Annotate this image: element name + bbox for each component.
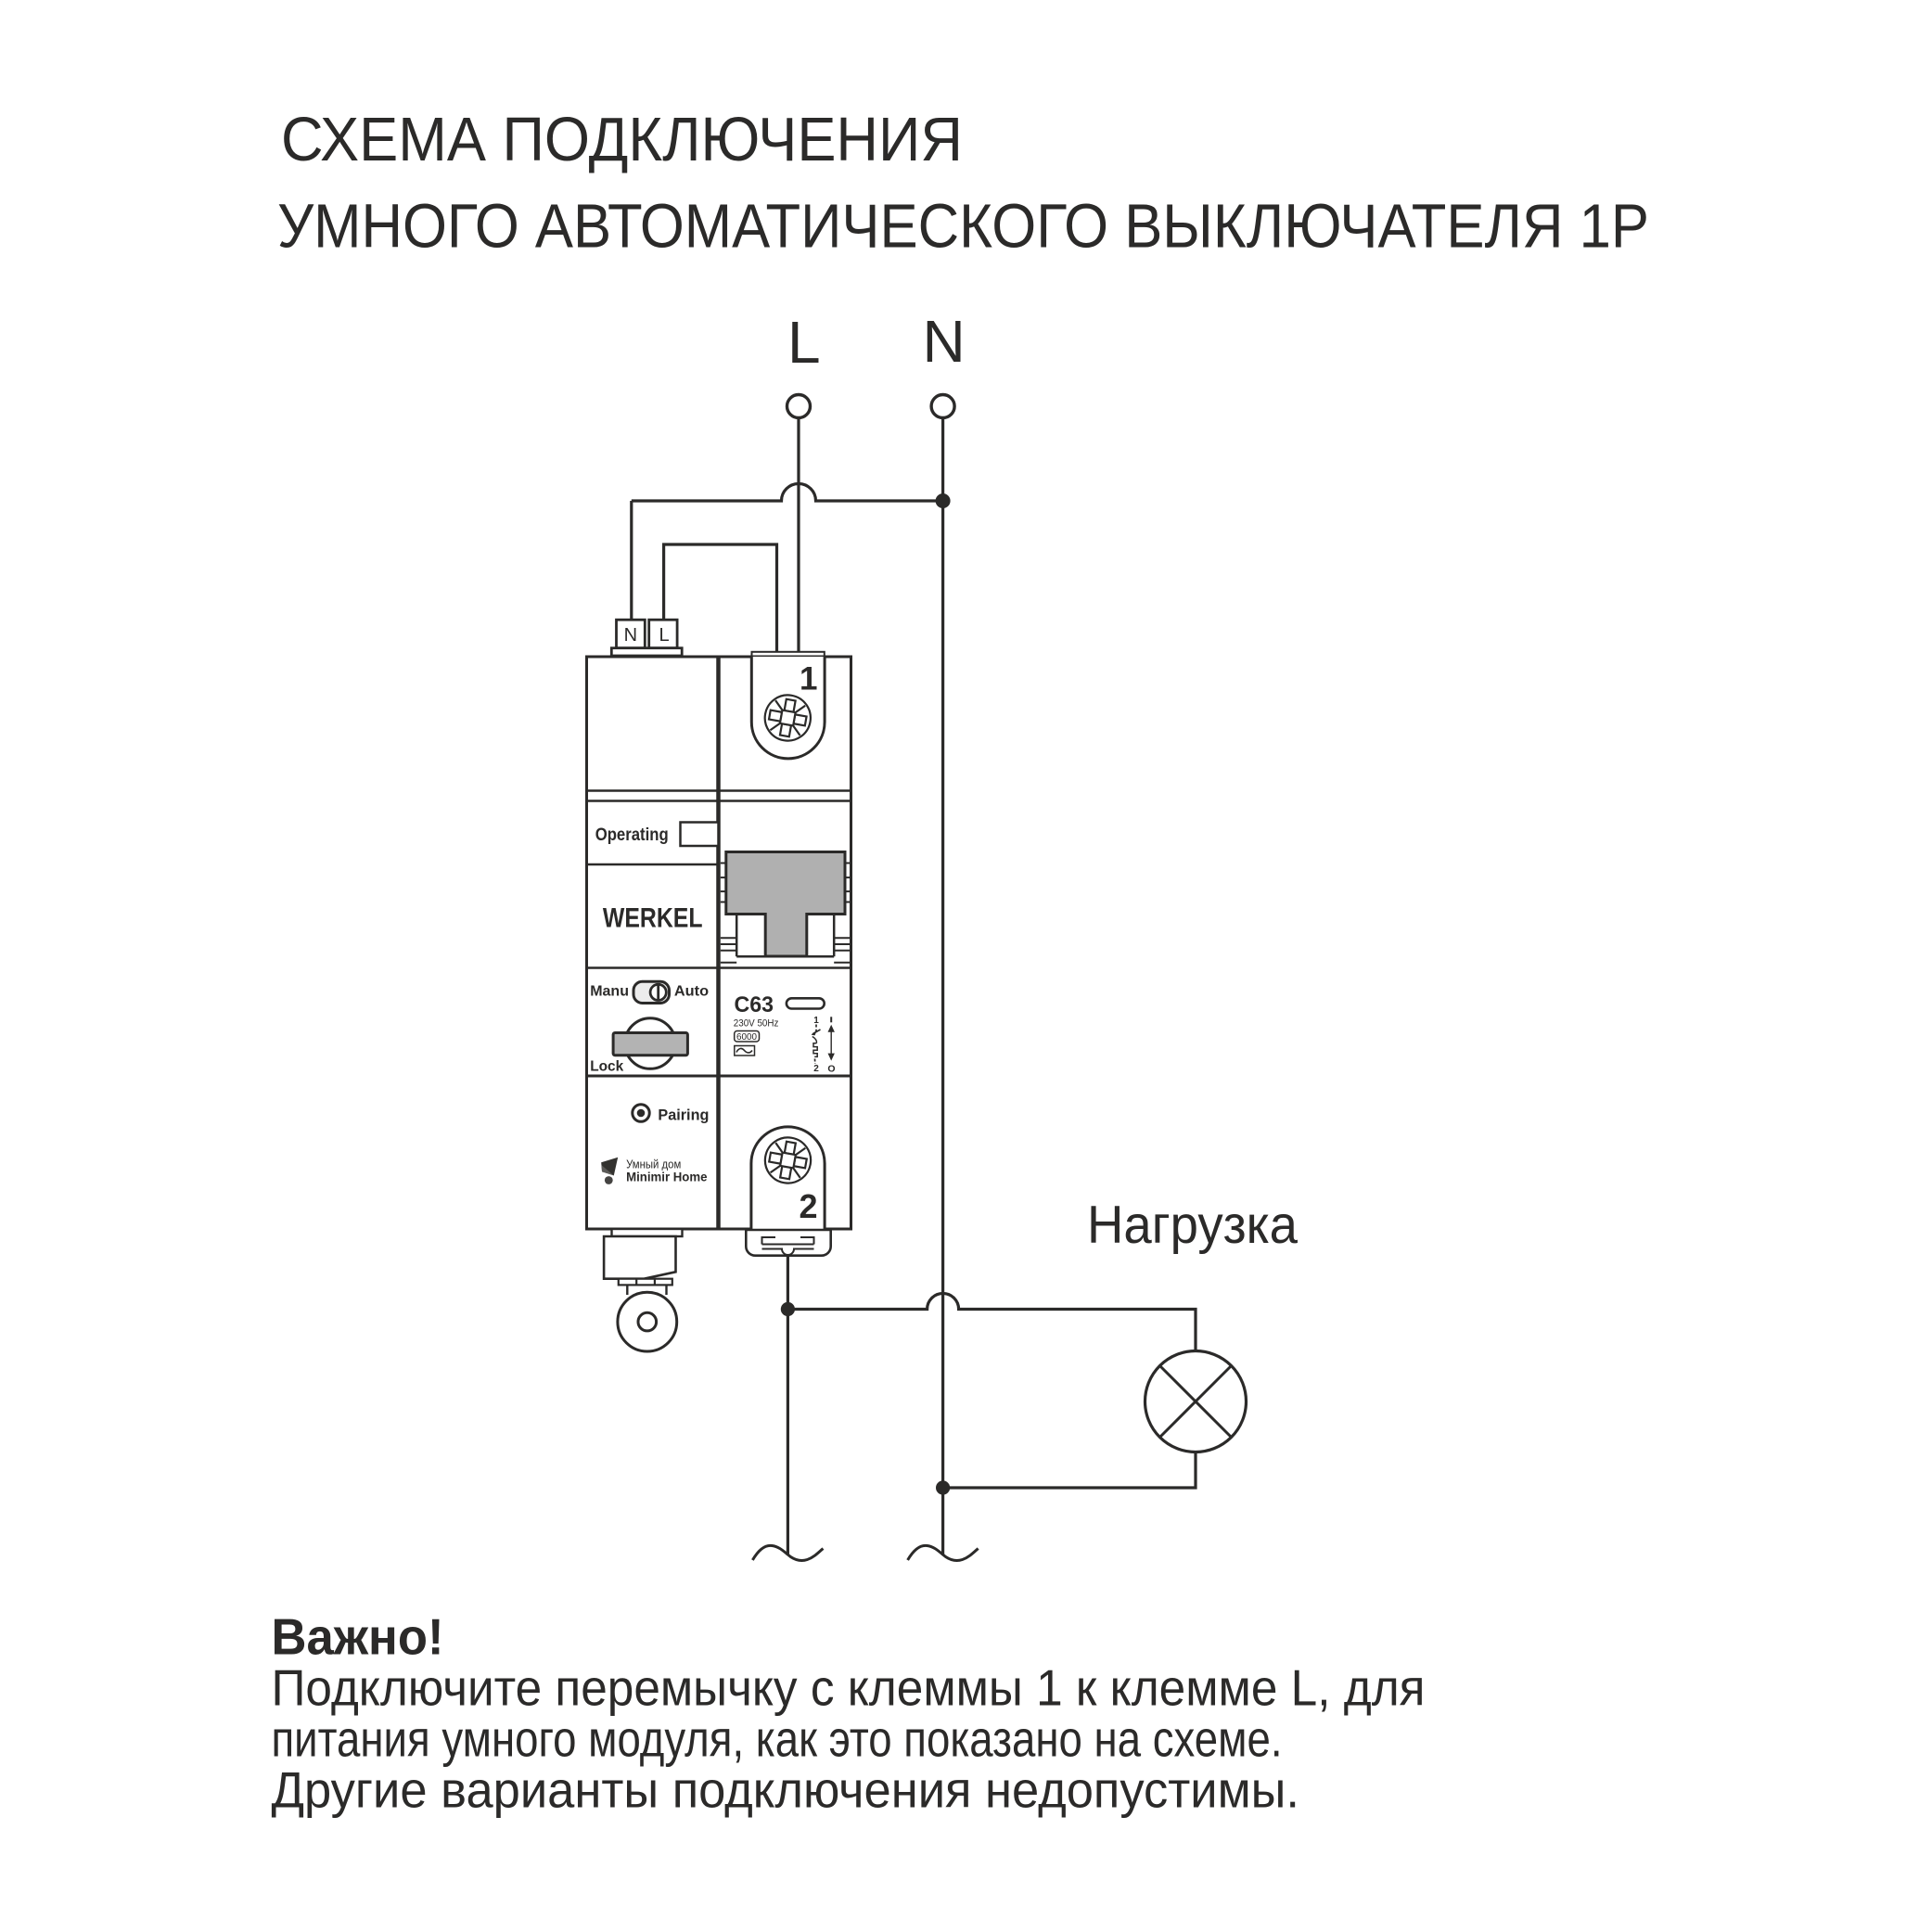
svg-text:O: O: [827, 1063, 835, 1074]
svg-text:Другие варианты подключения не: Другие варианты подключения недопустимы.: [272, 1761, 1300, 1819]
svg-text:питания умного модуля, как это: питания умного модуля, как это показано …: [272, 1710, 1283, 1768]
svg-text:N: N: [624, 625, 637, 646]
svg-text:Нагрузка: Нагрузка: [1087, 1196, 1298, 1255]
svg-text:УМНОГО АВТОМАТИЧЕСКОГО ВЫКЛЮЧА: УМНОГО АВТОМАТИЧЕСКОГО ВЫКЛЮЧАТЕЛЯ 1Р: [277, 192, 1649, 262]
svg-text:230V 50Hz: 230V 50Hz: [734, 1017, 779, 1029]
svg-text:Operating: Operating: [595, 825, 669, 845]
svg-text:Manu: Manu: [590, 983, 629, 999]
svg-text:Важно!: Важно!: [272, 1608, 444, 1666]
svg-text:Lock: Lock: [590, 1059, 623, 1075]
svg-text:Pairing: Pairing: [658, 1107, 709, 1124]
svg-text:N: N: [923, 308, 966, 375]
svg-text:Minimir Home: Minimir Home: [626, 1171, 708, 1184]
svg-text:1: 1: [813, 1016, 819, 1026]
svg-text:2: 2: [800, 1187, 818, 1225]
svg-text:L: L: [787, 309, 821, 376]
svg-text:1: 1: [800, 661, 817, 697]
svg-text:Подключите перемычку с клеммы: Подключите перемычку с клеммы 1 к клемме…: [272, 1659, 1426, 1717]
svg-text:L: L: [659, 625, 669, 646]
svg-text:6000: 6000: [736, 1031, 757, 1043]
svg-text:C63: C63: [735, 992, 774, 1017]
svg-text:СХЕМА ПОДКЛЮЧЕНИЯ: СХЕМА ПОДКЛЮЧЕНИЯ: [281, 105, 963, 174]
svg-text:Умный дом: Умный дом: [626, 1158, 681, 1171]
svg-text:WERKEL: WERKEL: [603, 903, 703, 934]
svg-text:Auto: Auto: [674, 984, 709, 1000]
svg-text:2: 2: [813, 1064, 819, 1074]
